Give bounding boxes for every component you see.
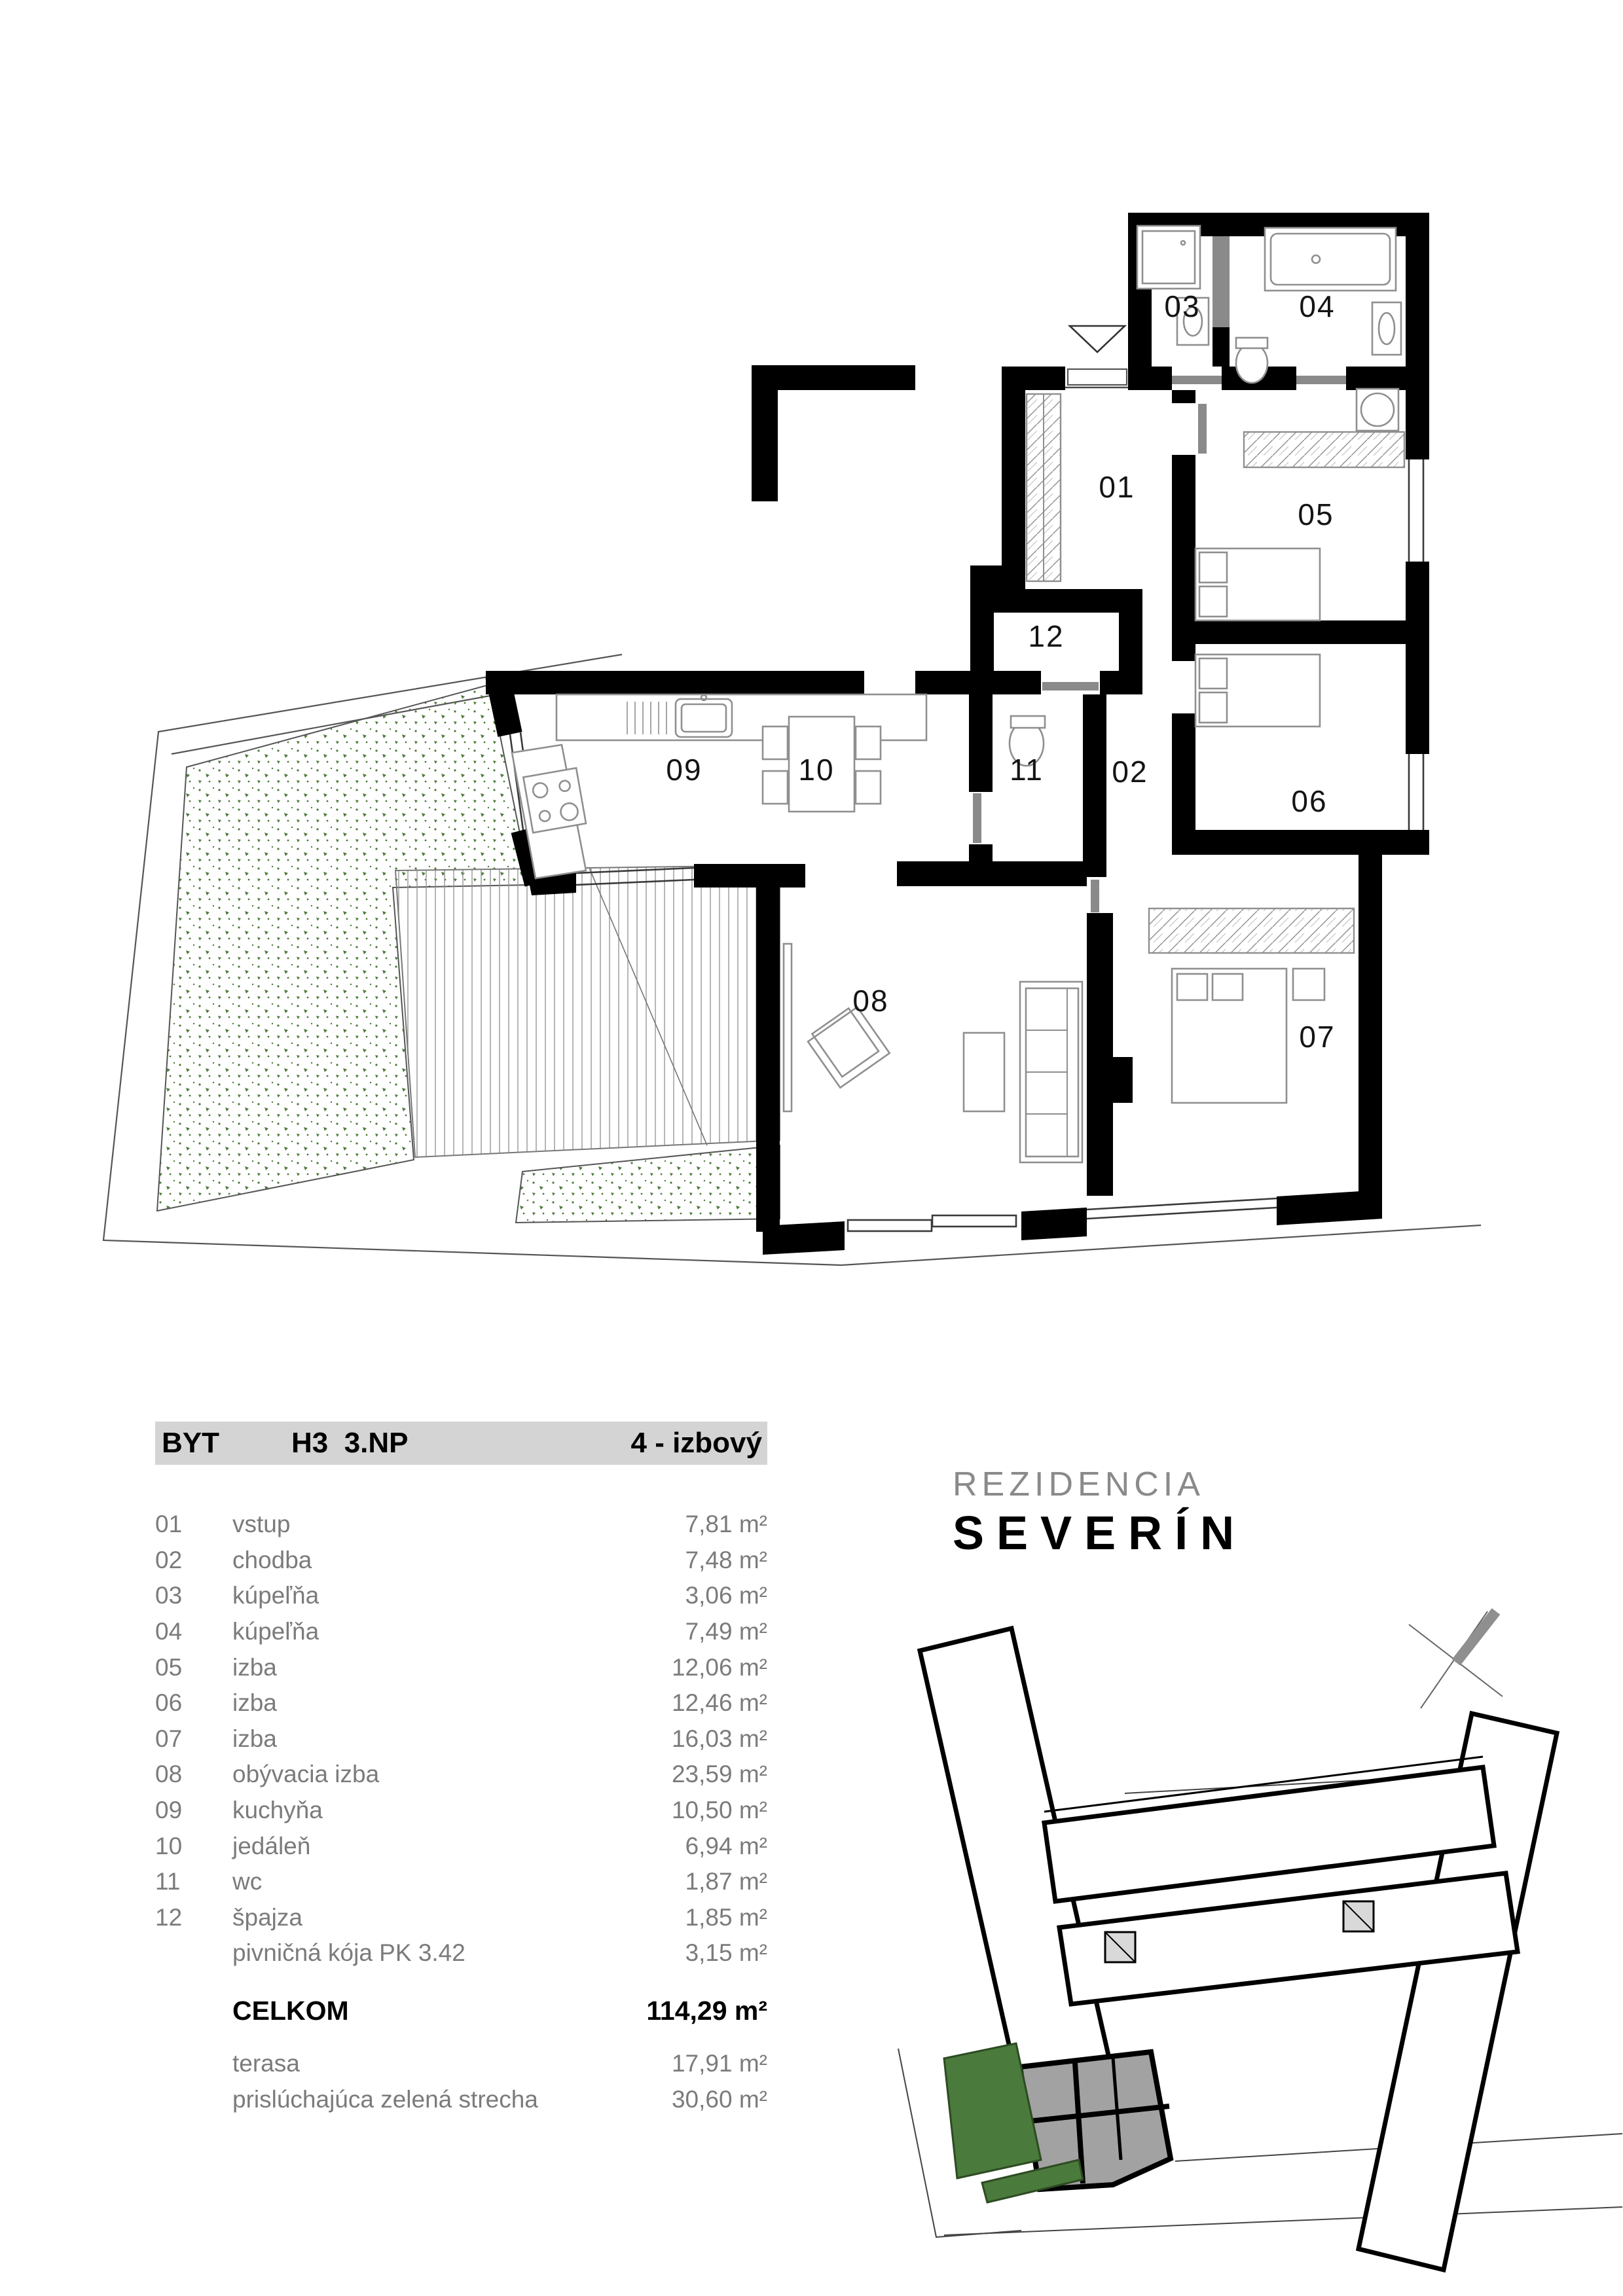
room-name-1: chodba	[232, 1547, 610, 1574]
wardrobe-07	[1149, 908, 1354, 953]
wardrobe-05	[1244, 432, 1404, 467]
compass-icon	[1409, 1611, 1503, 1708]
brochure-page: 010203040506070809101112 BYT H3 3.NP 4 -…	[0, 0, 1623, 2296]
toilet-04	[1236, 344, 1267, 383]
site-building	[920, 1628, 1557, 2270]
cooktop	[523, 768, 586, 833]
logo-line-1: REZIDENCIA	[953, 1465, 1319, 1504]
bed-06	[1195, 655, 1320, 726]
shower	[1137, 226, 1200, 289]
washing-machine	[1357, 389, 1398, 431]
room-num-0: 01	[155, 1511, 232, 1538]
bathtub	[1265, 228, 1396, 291]
room-label-04: 04	[1299, 289, 1335, 323]
room-label-06: 06	[1291, 784, 1327, 818]
green-roof-strip	[516, 1145, 780, 1223]
washbasin-04	[1372, 302, 1401, 355]
room-area-0: 7,81 m²	[610, 1511, 767, 1538]
room-num-1: 02	[155, 1547, 232, 1574]
entrance-arrow-icon	[1070, 326, 1125, 352]
highlighted-unit	[944, 2043, 1171, 2202]
header-flat-type: 4 - izbový	[631, 1427, 763, 1460]
room-label-10: 10	[798, 753, 834, 787]
bed-07	[1172, 969, 1286, 1103]
table-header-bar: BYT H3 3.NP 4 - izbový	[155, 1422, 767, 1465]
room-row-0: 01vstup7,81 m²	[155, 1507, 767, 1543]
room-label-12: 12	[1028, 619, 1064, 653]
room-name-0: vstup	[232, 1511, 610, 1538]
room-area-1: 7,48 m²	[610, 1547, 767, 1574]
terrace-deck	[395, 865, 780, 1157]
room-label-05: 05	[1298, 497, 1334, 531]
room-label-03: 03	[1164, 289, 1200, 323]
room-label-09: 09	[666, 753, 702, 787]
coffee-table	[964, 1033, 1004, 1111]
bed-05	[1195, 548, 1320, 620]
site-plan	[0, 1571, 1623, 2296]
header-unit: H3 3.NP	[291, 1427, 409, 1460]
logo: REZIDENCIA SEVERÍN	[953, 1465, 1319, 1560]
room-label-07: 07	[1299, 1020, 1335, 1054]
room-label-11: 11	[1010, 753, 1044, 787]
header-label: BYT	[162, 1427, 219, 1460]
room-label-08: 08	[852, 984, 888, 1018]
logo-line-2: SEVERÍN	[953, 1507, 1319, 1560]
tv-panel	[784, 944, 792, 1111]
entry-door	[1065, 326, 1128, 387]
room-label-02: 02	[1112, 755, 1148, 789]
room-label-01: 01	[1099, 470, 1135, 504]
floor-plan: 010203040506070809101112	[0, 0, 1623, 1374]
